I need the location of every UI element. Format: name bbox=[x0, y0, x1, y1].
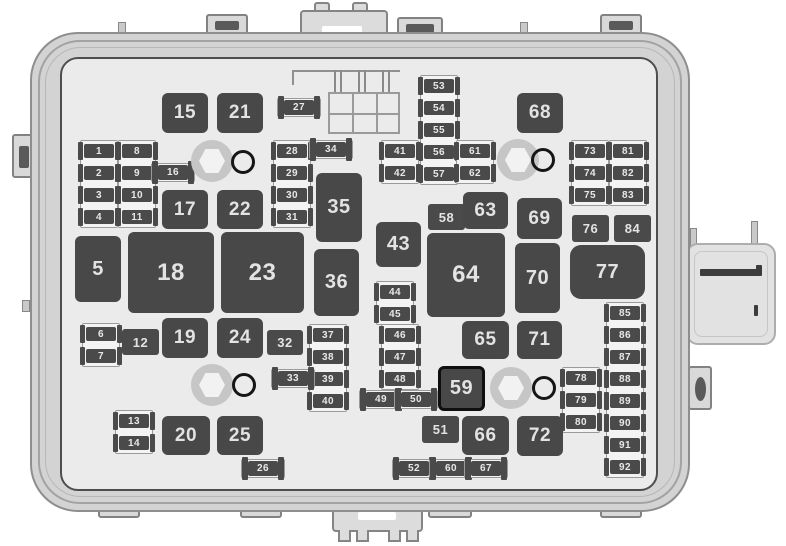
fuse-clip bbox=[153, 186, 158, 204]
relay-24: 24 bbox=[217, 318, 263, 358]
fuse-clip bbox=[379, 326, 384, 344]
fuse-clip bbox=[344, 370, 349, 388]
fuse-clip bbox=[604, 392, 609, 410]
hex-head bbox=[498, 376, 524, 400]
fuse-clip bbox=[271, 164, 276, 182]
fuse-clip bbox=[150, 434, 155, 452]
fuse-clip bbox=[116, 164, 121, 182]
fuse-83: 83 bbox=[613, 188, 643, 202]
fuse-clip bbox=[431, 388, 437, 411]
fuse-50: 50 bbox=[401, 392, 431, 407]
fuse-clip bbox=[641, 326, 646, 344]
relay-17: 17 bbox=[162, 190, 208, 229]
relay-35: 35 bbox=[316, 173, 362, 242]
components-layer: 1234891011282930315354555657414261627374… bbox=[0, 0, 786, 546]
fuse-86: 86 bbox=[610, 328, 640, 342]
fuse-clip bbox=[411, 283, 416, 301]
fuse-62: 62 bbox=[460, 166, 490, 180]
fuse-16: 16 bbox=[158, 165, 188, 180]
fuse-46: 46 bbox=[385, 328, 415, 342]
relay-19: 19 bbox=[162, 318, 208, 358]
fuse-clip bbox=[454, 164, 459, 182]
fuse-80: 80 bbox=[566, 415, 596, 429]
fuse-45: 45 bbox=[380, 307, 410, 321]
square-32: 32 bbox=[267, 330, 303, 355]
relay-22: 22 bbox=[217, 190, 263, 229]
fuse-clip bbox=[344, 326, 349, 344]
fuse-clip bbox=[455, 99, 460, 117]
fuse-clip bbox=[416, 326, 421, 344]
fuse-clip bbox=[597, 369, 602, 387]
fuse-10: 10 bbox=[122, 188, 152, 202]
fuse-91: 91 bbox=[610, 438, 640, 452]
hex-bolt-3 bbox=[191, 364, 233, 406]
fuse-clip bbox=[374, 305, 379, 323]
fuse-85: 85 bbox=[610, 306, 640, 320]
relay-20: 20 bbox=[162, 416, 210, 455]
fuse-clip bbox=[604, 436, 609, 454]
fuse-clip bbox=[379, 142, 384, 160]
fuse-clip bbox=[308, 208, 313, 226]
fuse-54: 54 bbox=[424, 101, 454, 115]
ring-4 bbox=[532, 376, 556, 400]
fuse-clip bbox=[641, 370, 646, 388]
fuse-clip bbox=[416, 142, 421, 160]
fuse-clip bbox=[344, 392, 349, 410]
fuse-48: 48 bbox=[385, 372, 415, 386]
fuse-clip bbox=[418, 121, 423, 139]
fuse-clip bbox=[560, 391, 565, 409]
fuse-1: 1 bbox=[84, 144, 114, 158]
fuse-11: 11 bbox=[122, 210, 152, 224]
fuse-clip bbox=[560, 369, 565, 387]
fuse-clip bbox=[641, 392, 646, 410]
hex-bolt-1 bbox=[191, 140, 233, 182]
fuse-clip bbox=[416, 370, 421, 388]
fuse-clip bbox=[314, 96, 320, 119]
fuse-clip bbox=[455, 77, 460, 95]
fuse-clip bbox=[307, 348, 312, 366]
fuse-34: 34 bbox=[316, 142, 346, 157]
fuse-clip bbox=[644, 164, 649, 182]
relay-68: 68 bbox=[517, 93, 563, 133]
relay-66: 66 bbox=[462, 416, 509, 455]
fuse-clip bbox=[153, 142, 158, 160]
fuse-33: 33 bbox=[278, 371, 308, 386]
fuse-55: 55 bbox=[424, 123, 454, 137]
fuse-clip bbox=[116, 186, 121, 204]
fuse-clip bbox=[78, 142, 83, 160]
hex-head bbox=[505, 148, 531, 172]
fuse-clip bbox=[308, 367, 314, 390]
relay-71: 71 bbox=[517, 321, 562, 359]
relay-65: 65 bbox=[462, 321, 509, 359]
fuse-clip bbox=[346, 138, 352, 161]
relay-5: 5 bbox=[75, 236, 121, 302]
fuse-44: 44 bbox=[380, 285, 410, 299]
fuse-clip bbox=[271, 186, 276, 204]
fuse-clip bbox=[271, 142, 276, 160]
fuse-29: 29 bbox=[277, 166, 307, 180]
relay-63: 63 bbox=[463, 192, 508, 229]
square-58: 58 bbox=[428, 204, 465, 230]
fuse-4: 4 bbox=[84, 210, 114, 224]
fuse-56: 56 bbox=[424, 145, 454, 159]
fuse-clip bbox=[454, 142, 459, 160]
fuse-13: 13 bbox=[119, 414, 149, 428]
relay-72: 72 bbox=[517, 416, 563, 456]
fuse-37: 37 bbox=[313, 328, 343, 342]
fuse-60: 60 bbox=[436, 461, 466, 476]
fuse-clip bbox=[78, 186, 83, 204]
fuse-clip bbox=[150, 412, 155, 430]
fuse-clip bbox=[416, 348, 421, 366]
fuse-39: 39 bbox=[313, 372, 343, 386]
fuse-clip bbox=[307, 326, 312, 344]
fuse-clip bbox=[113, 412, 118, 430]
fuse-6: 6 bbox=[86, 327, 116, 341]
relay-25: 25 bbox=[217, 416, 263, 455]
fuse-8: 8 bbox=[122, 144, 152, 158]
relay-15: 15 bbox=[162, 93, 208, 133]
fuse-30: 30 bbox=[277, 188, 307, 202]
fuse-clip bbox=[644, 186, 649, 204]
fuse-88: 88 bbox=[610, 372, 640, 386]
fuse-79: 79 bbox=[566, 393, 596, 407]
fuse-clip bbox=[379, 348, 384, 366]
ring-2 bbox=[531, 148, 555, 172]
ring-3 bbox=[232, 373, 256, 397]
fuse-clip bbox=[308, 186, 313, 204]
fuse-clip bbox=[116, 142, 121, 160]
fuse-42: 42 bbox=[385, 166, 415, 180]
fuse-clip bbox=[569, 142, 574, 160]
fuse-clip bbox=[379, 370, 384, 388]
fuse-3: 3 bbox=[84, 188, 114, 202]
fuse-clip bbox=[416, 164, 421, 182]
hex-head bbox=[199, 149, 225, 173]
fuse-74: 74 bbox=[575, 166, 605, 180]
relay-64: 64 bbox=[427, 233, 505, 317]
fuse-clip bbox=[597, 391, 602, 409]
fuse-clip bbox=[501, 457, 507, 480]
fuse-box-diagram: 1234891011282930315354555657414261627374… bbox=[0, 0, 786, 546]
fuse-clip bbox=[604, 304, 609, 322]
relay-36: 36 bbox=[314, 249, 359, 316]
fuse-61: 61 bbox=[460, 144, 490, 158]
fuse-clip bbox=[78, 164, 83, 182]
square-84: 84 bbox=[614, 215, 651, 242]
ring-1 bbox=[231, 150, 255, 174]
fuse-clip bbox=[374, 283, 379, 301]
fuse-clip bbox=[604, 458, 609, 476]
fuse-clip bbox=[379, 164, 384, 182]
fuse-38: 38 bbox=[313, 350, 343, 364]
fuse-clip bbox=[80, 325, 85, 343]
fuse-26: 26 bbox=[248, 461, 278, 476]
fuse-clip bbox=[641, 458, 646, 476]
fuse-clip bbox=[569, 186, 574, 204]
fuse-82: 82 bbox=[613, 166, 643, 180]
fuse-78: 78 bbox=[566, 371, 596, 385]
fuse-40: 40 bbox=[313, 394, 343, 408]
hex-head bbox=[199, 373, 225, 397]
fuse-clip bbox=[418, 99, 423, 117]
fuse-clip bbox=[80, 347, 85, 365]
relay-18: 18 bbox=[128, 232, 214, 313]
relay-59: 59 bbox=[438, 366, 485, 411]
fuse-clip bbox=[344, 348, 349, 366]
fuse-clip bbox=[641, 304, 646, 322]
relay-70: 70 bbox=[515, 243, 560, 313]
relay-43: 43 bbox=[376, 222, 421, 267]
relay-23: 23 bbox=[221, 232, 304, 313]
square-12: 12 bbox=[122, 329, 159, 355]
fuse-clip bbox=[607, 142, 612, 160]
fuse-90: 90 bbox=[610, 416, 640, 430]
fuse-clip bbox=[597, 413, 602, 431]
fuse-clip bbox=[455, 121, 460, 139]
fuse-clip bbox=[607, 164, 612, 182]
fuse-clip bbox=[604, 326, 609, 344]
hex-bolt-4 bbox=[490, 367, 532, 409]
fuse-clip bbox=[491, 142, 496, 160]
fuse-57: 57 bbox=[424, 167, 454, 181]
fuse-7: 7 bbox=[86, 349, 116, 363]
fuse-27: 27 bbox=[284, 100, 314, 115]
fuse-41: 41 bbox=[385, 144, 415, 158]
relay-69: 69 bbox=[517, 198, 562, 239]
fuse-67: 67 bbox=[471, 461, 501, 476]
fuse-clip bbox=[644, 142, 649, 160]
fuse-28: 28 bbox=[277, 144, 307, 158]
relay-77: 77 bbox=[570, 245, 645, 299]
fuse-clip bbox=[308, 164, 313, 182]
fuse-clip bbox=[604, 370, 609, 388]
fuse-81: 81 bbox=[613, 144, 643, 158]
square-76: 76 bbox=[572, 215, 609, 242]
fuse-75: 75 bbox=[575, 188, 605, 202]
fuse-87: 87 bbox=[610, 350, 640, 364]
fuse-49: 49 bbox=[366, 392, 396, 407]
fuse-clip bbox=[604, 348, 609, 366]
fuse-clip bbox=[569, 164, 574, 182]
fuse-73: 73 bbox=[575, 144, 605, 158]
fuse-clip bbox=[641, 436, 646, 454]
fuse-clip bbox=[604, 414, 609, 432]
fuse-clip bbox=[78, 208, 83, 226]
fuse-clip bbox=[641, 348, 646, 366]
fuse-clip bbox=[116, 208, 121, 226]
fuse-clip bbox=[607, 186, 612, 204]
fuse-47: 47 bbox=[385, 350, 415, 364]
fuse-clip bbox=[113, 434, 118, 452]
fuse-clip bbox=[641, 414, 646, 432]
fuse-52: 52 bbox=[399, 461, 429, 476]
fuse-89: 89 bbox=[610, 394, 640, 408]
fuse-clip bbox=[411, 305, 416, 323]
relay-21: 21 bbox=[217, 93, 263, 133]
fuse-9: 9 bbox=[122, 166, 152, 180]
fuse-clip bbox=[278, 457, 284, 480]
fuse-14: 14 bbox=[119, 436, 149, 450]
fuse-31: 31 bbox=[277, 210, 307, 224]
fuse-clip bbox=[307, 392, 312, 410]
fuse-53: 53 bbox=[424, 79, 454, 93]
fuse-clip bbox=[491, 164, 496, 182]
fuse-clip bbox=[153, 208, 158, 226]
fuse-clip bbox=[418, 77, 423, 95]
fuse-92: 92 bbox=[610, 460, 640, 474]
fuse-2: 2 bbox=[84, 166, 114, 180]
fuse-clip bbox=[271, 208, 276, 226]
square-51: 51 bbox=[422, 416, 459, 443]
